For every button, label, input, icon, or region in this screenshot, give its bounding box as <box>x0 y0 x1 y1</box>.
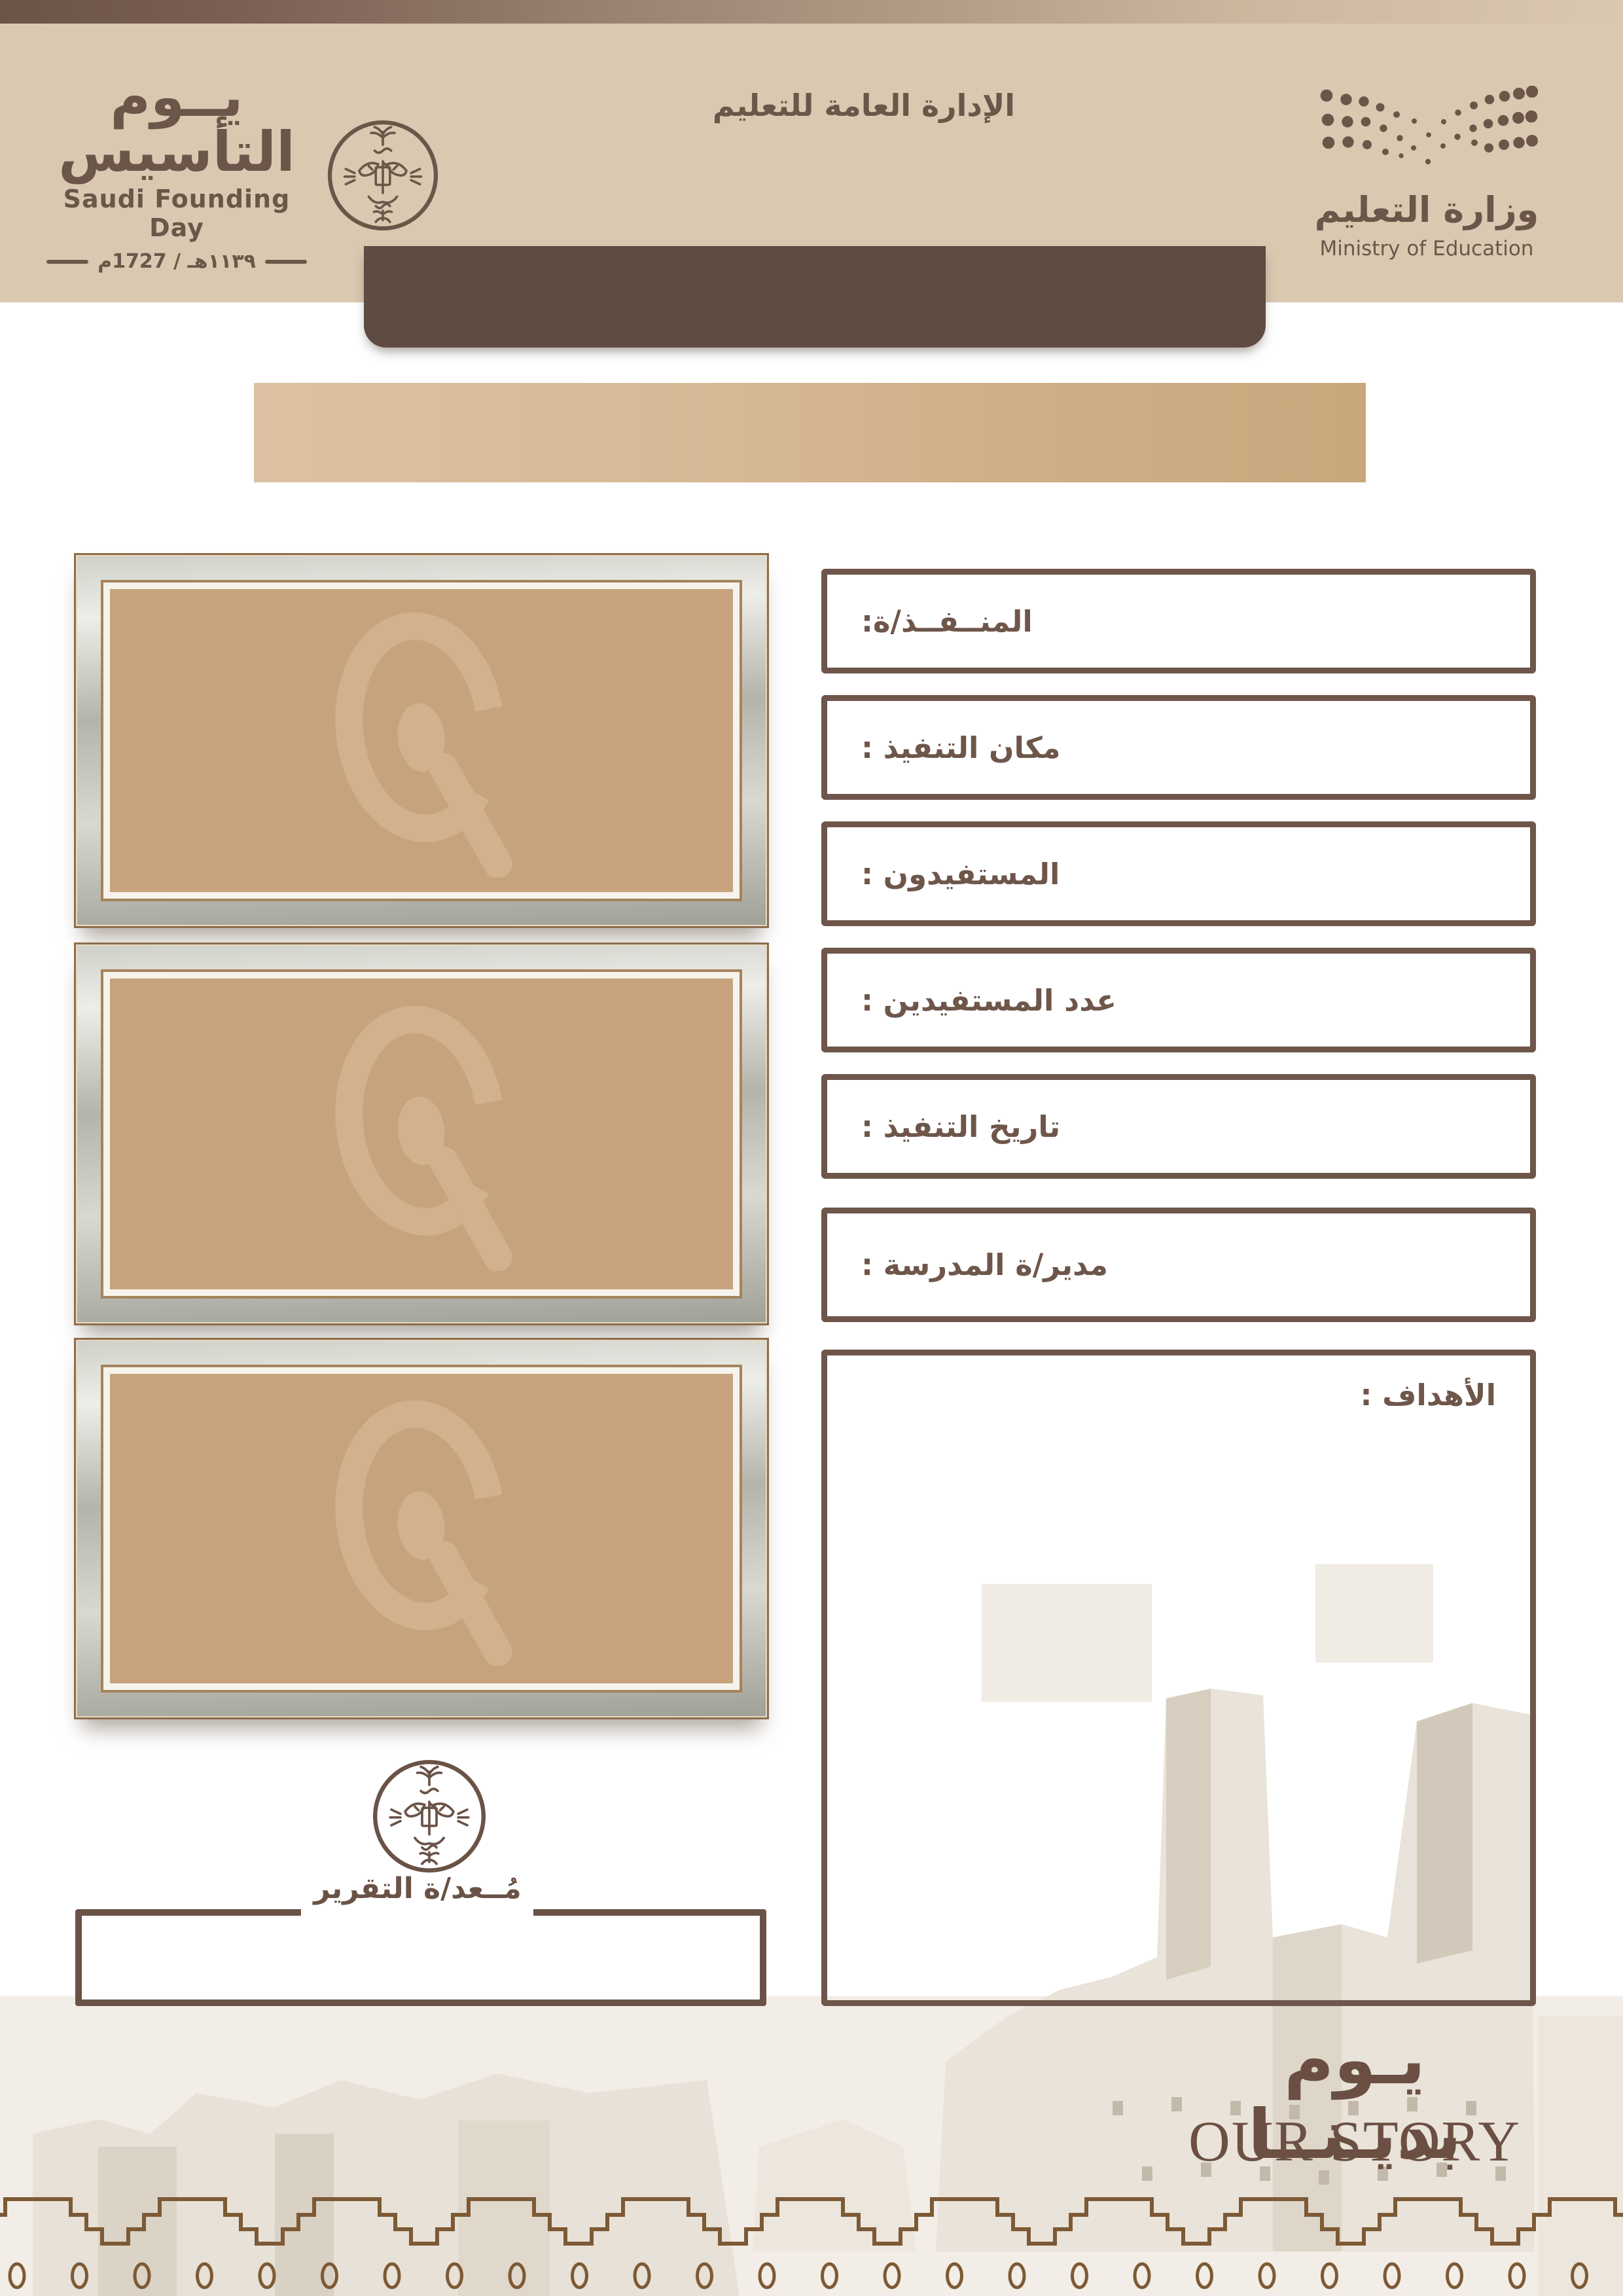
our-story-watermark-icon <box>299 586 544 895</box>
title-banner[interactable] <box>254 383 1366 482</box>
field-executor[interactable]: المنــفــذ/ة: <box>821 569 1536 673</box>
objectives-box[interactable]: الأهداف : <box>821 1350 1536 2006</box>
ministry-name-arabic: وزارة التعليم <box>1309 189 1544 230</box>
field-beneficiaries-label: المستفيدون : <box>861 857 1060 891</box>
top-gradient-strip <box>0 0 1623 24</box>
title-bar[interactable] <box>364 246 1266 348</box>
field-executor-label: المنــفــذ/ة: <box>861 604 1033 639</box>
founding-day-report-page: يــوم التأسيس Saudi Founding Day ١١٣٩هـ … <box>0 0 1623 2296</box>
department-title: الإدارة العامة للتعليم <box>681 88 1047 123</box>
ministry-of-education-logo: وزارة التعليم Ministry of Education <box>1309 86 1544 260</box>
footer-dots-border <box>0 2261 1623 2290</box>
field-execution-place[interactable]: مكان التنفيذ : <box>821 695 1536 800</box>
objectives-label: الأهداف : <box>1361 1378 1497 1412</box>
field-execution-date-label: تاريخ التنفيذ : <box>861 1109 1060 1144</box>
photo-frame-2[interactable] <box>74 942 769 1325</box>
field-school-principal-label: مدير/ة المدرسة : <box>861 1247 1108 1282</box>
field-beneficiaries-count-label: عدد المستفيدين : <box>861 983 1116 1018</box>
founding-day-emblem-icon <box>324 117 442 234</box>
founding-day-seal-icon <box>369 1756 490 1876</box>
our-story-watermark-icon <box>299 1374 544 1683</box>
photo-frame-1[interactable] <box>74 553 769 928</box>
field-execution-date[interactable]: تاريخ التنفيذ : <box>821 1074 1536 1179</box>
field-school-principal[interactable]: مدير/ة المدرسة : <box>821 1208 1536 1322</box>
photo-placeholder-2 <box>101 969 742 1299</box>
founding-day-date: ١١٣٩هـ / 1727م <box>98 250 256 273</box>
report-preparer-label: مُــعد/ة التقرير <box>280 1871 555 1907</box>
founding-day-date-line: ١١٣٩هـ / 1727م <box>39 250 314 273</box>
photo-placeholder-1 <box>101 580 742 901</box>
ministry-logo-dots-icon <box>1315 86 1538 171</box>
ministry-name-english: Ministry of Education <box>1309 237 1544 260</box>
slogan-english: OUR STORY <box>1171 2109 1538 2175</box>
report-preparer-box[interactable] <box>75 1909 766 2006</box>
saudi-founding-day-logo: يــوم التأسيس Saudi Founding Day ١١٣٩هـ … <box>39 69 314 273</box>
date-dash-right <box>46 260 88 264</box>
crenellation-border <box>0 2194 1623 2249</box>
founding-day-title-arabic: يــوم التأسيس <box>39 69 314 179</box>
date-dash-left <box>265 260 307 264</box>
field-beneficiaries[interactable]: المستفيدون : <box>821 821 1536 926</box>
founding-day-title-english: Saudi Founding Day <box>39 185 314 242</box>
our-story-watermark-icon <box>299 979 544 1288</box>
field-beneficiaries-count[interactable]: عدد المستفيدين : <box>821 948 1536 1052</box>
photo-frame-3[interactable] <box>74 1338 769 1719</box>
photo-placeholder-3 <box>101 1365 742 1693</box>
field-execution-place-label: مكان التنفيذ : <box>861 730 1060 765</box>
